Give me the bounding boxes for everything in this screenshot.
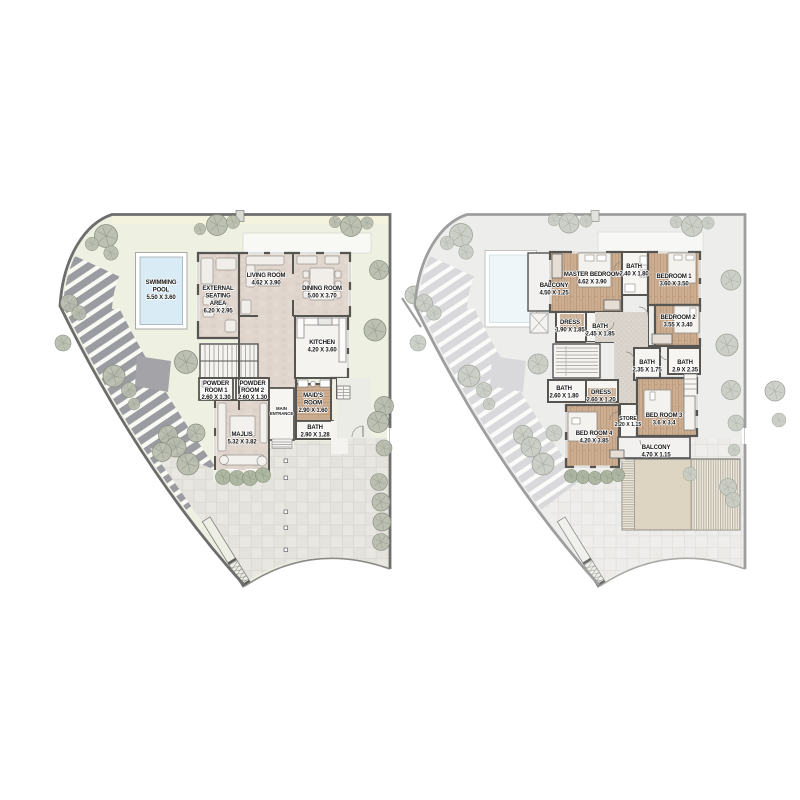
svg-text:DINING ROOM5.00 X 3.70: DINING ROOM5.00 X 3.70 [302,286,342,300]
svg-text:BEDROOM 13.60 X 3.50: BEDROOM 13.60 X 3.50 [657,274,693,288]
svg-text:BALCONY4.70 X 1.15: BALCONY4.70 X 1.15 [641,445,671,459]
svg-text:BED ROOM 44.20 X 3.85: BED ROOM 44.20 X 3.85 [576,431,613,445]
svg-text:BALCONY4.50 X 1.25: BALCONY4.50 X 1.25 [539,283,569,297]
svg-text:LIVING ROOM4.62 X 3.90: LIVING ROOM4.62 X 3.90 [247,273,286,287]
svg-text:BEDROOM 23.55 X 3.40: BEDROOM 23.55 X 3.40 [661,315,697,329]
svg-text:KITCHEN4.20 X 3.60: KITCHEN4.20 X 3.60 [307,340,337,354]
svg-text:POWDERROOM 22.60 X 1.30: POWDERROOM 22.60 X 1.30 [238,381,268,401]
svg-text:POWDERROOM 12.60 X 1.30: POWDERROOM 12.60 X 1.30 [201,381,231,401]
